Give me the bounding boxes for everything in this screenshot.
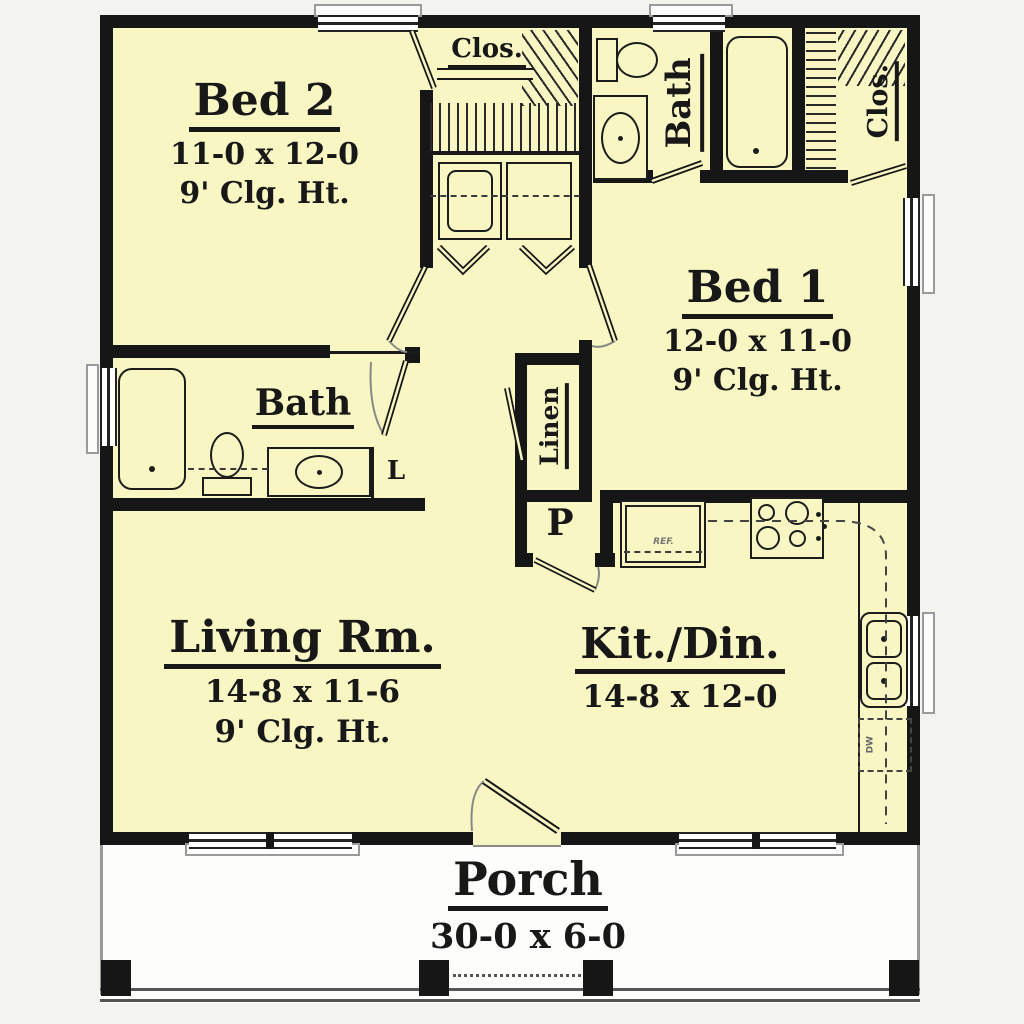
- room-ceiling: 9' Clg. Ht.: [600, 365, 915, 397]
- stove-knob: [816, 536, 821, 541]
- porch-label: Porch 30-0 x 6-0: [400, 855, 656, 956]
- refrigerator: [620, 500, 706, 568]
- dishwasher-label: DW: [866, 732, 875, 758]
- wall-tub-closet: [792, 28, 805, 178]
- counter-dash-line: [188, 468, 268, 470]
- toilet-bowl: [616, 42, 658, 78]
- room-dims: 14-8 x 11-6: [130, 676, 475, 709]
- refrigerator-label: REF.: [636, 538, 691, 547]
- room-name: Bath: [252, 385, 355, 429]
- wall-linen-west: [515, 353, 527, 567]
- tub-drain: [753, 148, 759, 154]
- wall-pantry-stub-left: [515, 553, 533, 567]
- room-name: Clos.: [865, 61, 899, 141]
- porch-steps: [453, 974, 581, 977]
- room-name: Bath: [662, 54, 704, 151]
- counter-dash-line: [430, 195, 580, 197]
- wall-stub-hall: [405, 347, 420, 363]
- wall-bath-tub: [710, 28, 723, 178]
- room-name: Kit./Din.: [575, 622, 784, 674]
- porch-edge-line: [100, 988, 920, 991]
- window-bath-hall: [100, 368, 117, 446]
- tub-drain: [149, 466, 155, 472]
- room-name: Linen: [537, 383, 569, 468]
- bed2-label: Bed 2 11-0 x 12-0 9' Clg. Ht.: [112, 78, 417, 209]
- window-frame-tab: [86, 364, 99, 454]
- bed1-label: Bed 1 12-0 x 11-0 9' Clg. Ht.: [600, 265, 915, 396]
- wall-laundry-bath: [579, 28, 592, 268]
- sink-drain: [881, 678, 887, 684]
- room-name: Porch: [448, 855, 608, 911]
- bath-top-label: Bath: [662, 53, 704, 153]
- room-dims: 14-8 x 12-0: [540, 681, 820, 714]
- counter-dash-line: [624, 551, 702, 553]
- porch-edge-line: [100, 999, 920, 1002]
- linen-label: Linen: [537, 383, 569, 469]
- toilet-tank: [596, 38, 618, 82]
- sink-drain: [317, 470, 322, 475]
- linen-closet-divider: [371, 447, 374, 498]
- burner: [785, 501, 809, 525]
- porch-post: [889, 960, 919, 996]
- burner: [789, 530, 806, 547]
- living-room-label: Living Rm. 14-8 x 11-6 9' Clg. Ht.: [130, 615, 475, 748]
- master-closet-label: Clos.: [865, 53, 899, 149]
- hall-bath-label: Bath: [233, 385, 373, 429]
- room-ceiling: 9' Clg. Ht.: [112, 178, 417, 210]
- room-dims: 11-0 x 12-0: [112, 139, 417, 171]
- wall-bath-living: [100, 498, 425, 511]
- closet-shelf-hatch: [806, 32, 836, 170]
- toilet-bowl: [210, 432, 244, 478]
- closet-shelf-line: [425, 151, 580, 155]
- wall-bed2-bath: [100, 345, 330, 358]
- stove-knob: [816, 512, 821, 517]
- sink-drain: [618, 136, 623, 141]
- room-name: Bed 2: [189, 78, 341, 132]
- window-bath-top: [653, 15, 725, 32]
- closet-rod: [437, 68, 533, 80]
- sink-drain: [881, 636, 887, 642]
- front-door-opening: [473, 832, 561, 847]
- wall-linen-pantry: [515, 490, 591, 502]
- closet-hanging-hatch: [430, 103, 578, 151]
- kitchen-dining-label: Kit./Din. 14-8 x 12-0: [540, 622, 820, 714]
- window-frame-tab: [922, 194, 935, 294]
- dryer: [506, 162, 572, 240]
- wall-cased-opening: [330, 351, 420, 354]
- floor-plan: Bed 2 11-0 x 12-0 9' Clg. Ht. Bed 1 12-0…: [0, 0, 1024, 1024]
- exterior-wall-top: [100, 15, 920, 28]
- stove-knob: [822, 524, 827, 529]
- room-name: Clos.: [448, 36, 526, 69]
- room-dims: 30-0 x 6-0: [400, 919, 656, 956]
- burner: [758, 504, 775, 521]
- burner: [756, 526, 780, 550]
- porch-post: [419, 960, 449, 996]
- porch-post: [583, 960, 613, 996]
- room-ceiling: 9' Clg. Ht.: [130, 716, 475, 749]
- toilet-tank: [202, 477, 252, 496]
- pantry-label: P: [535, 505, 585, 543]
- window-bed2: [318, 15, 418, 32]
- room-dims: 12-0 x 11-0: [600, 326, 915, 358]
- small-linen-label: L: [381, 458, 411, 485]
- room-name: Bed 1: [682, 265, 834, 319]
- window-mullion: [752, 832, 760, 849]
- room-name: Living Rm.: [164, 615, 440, 669]
- hall-closet-label: Clos.: [435, 36, 539, 69]
- window-mullion: [266, 832, 274, 849]
- washer-drum: [447, 170, 493, 232]
- porch-post: [101, 960, 131, 996]
- window-frame-tab: [922, 612, 935, 714]
